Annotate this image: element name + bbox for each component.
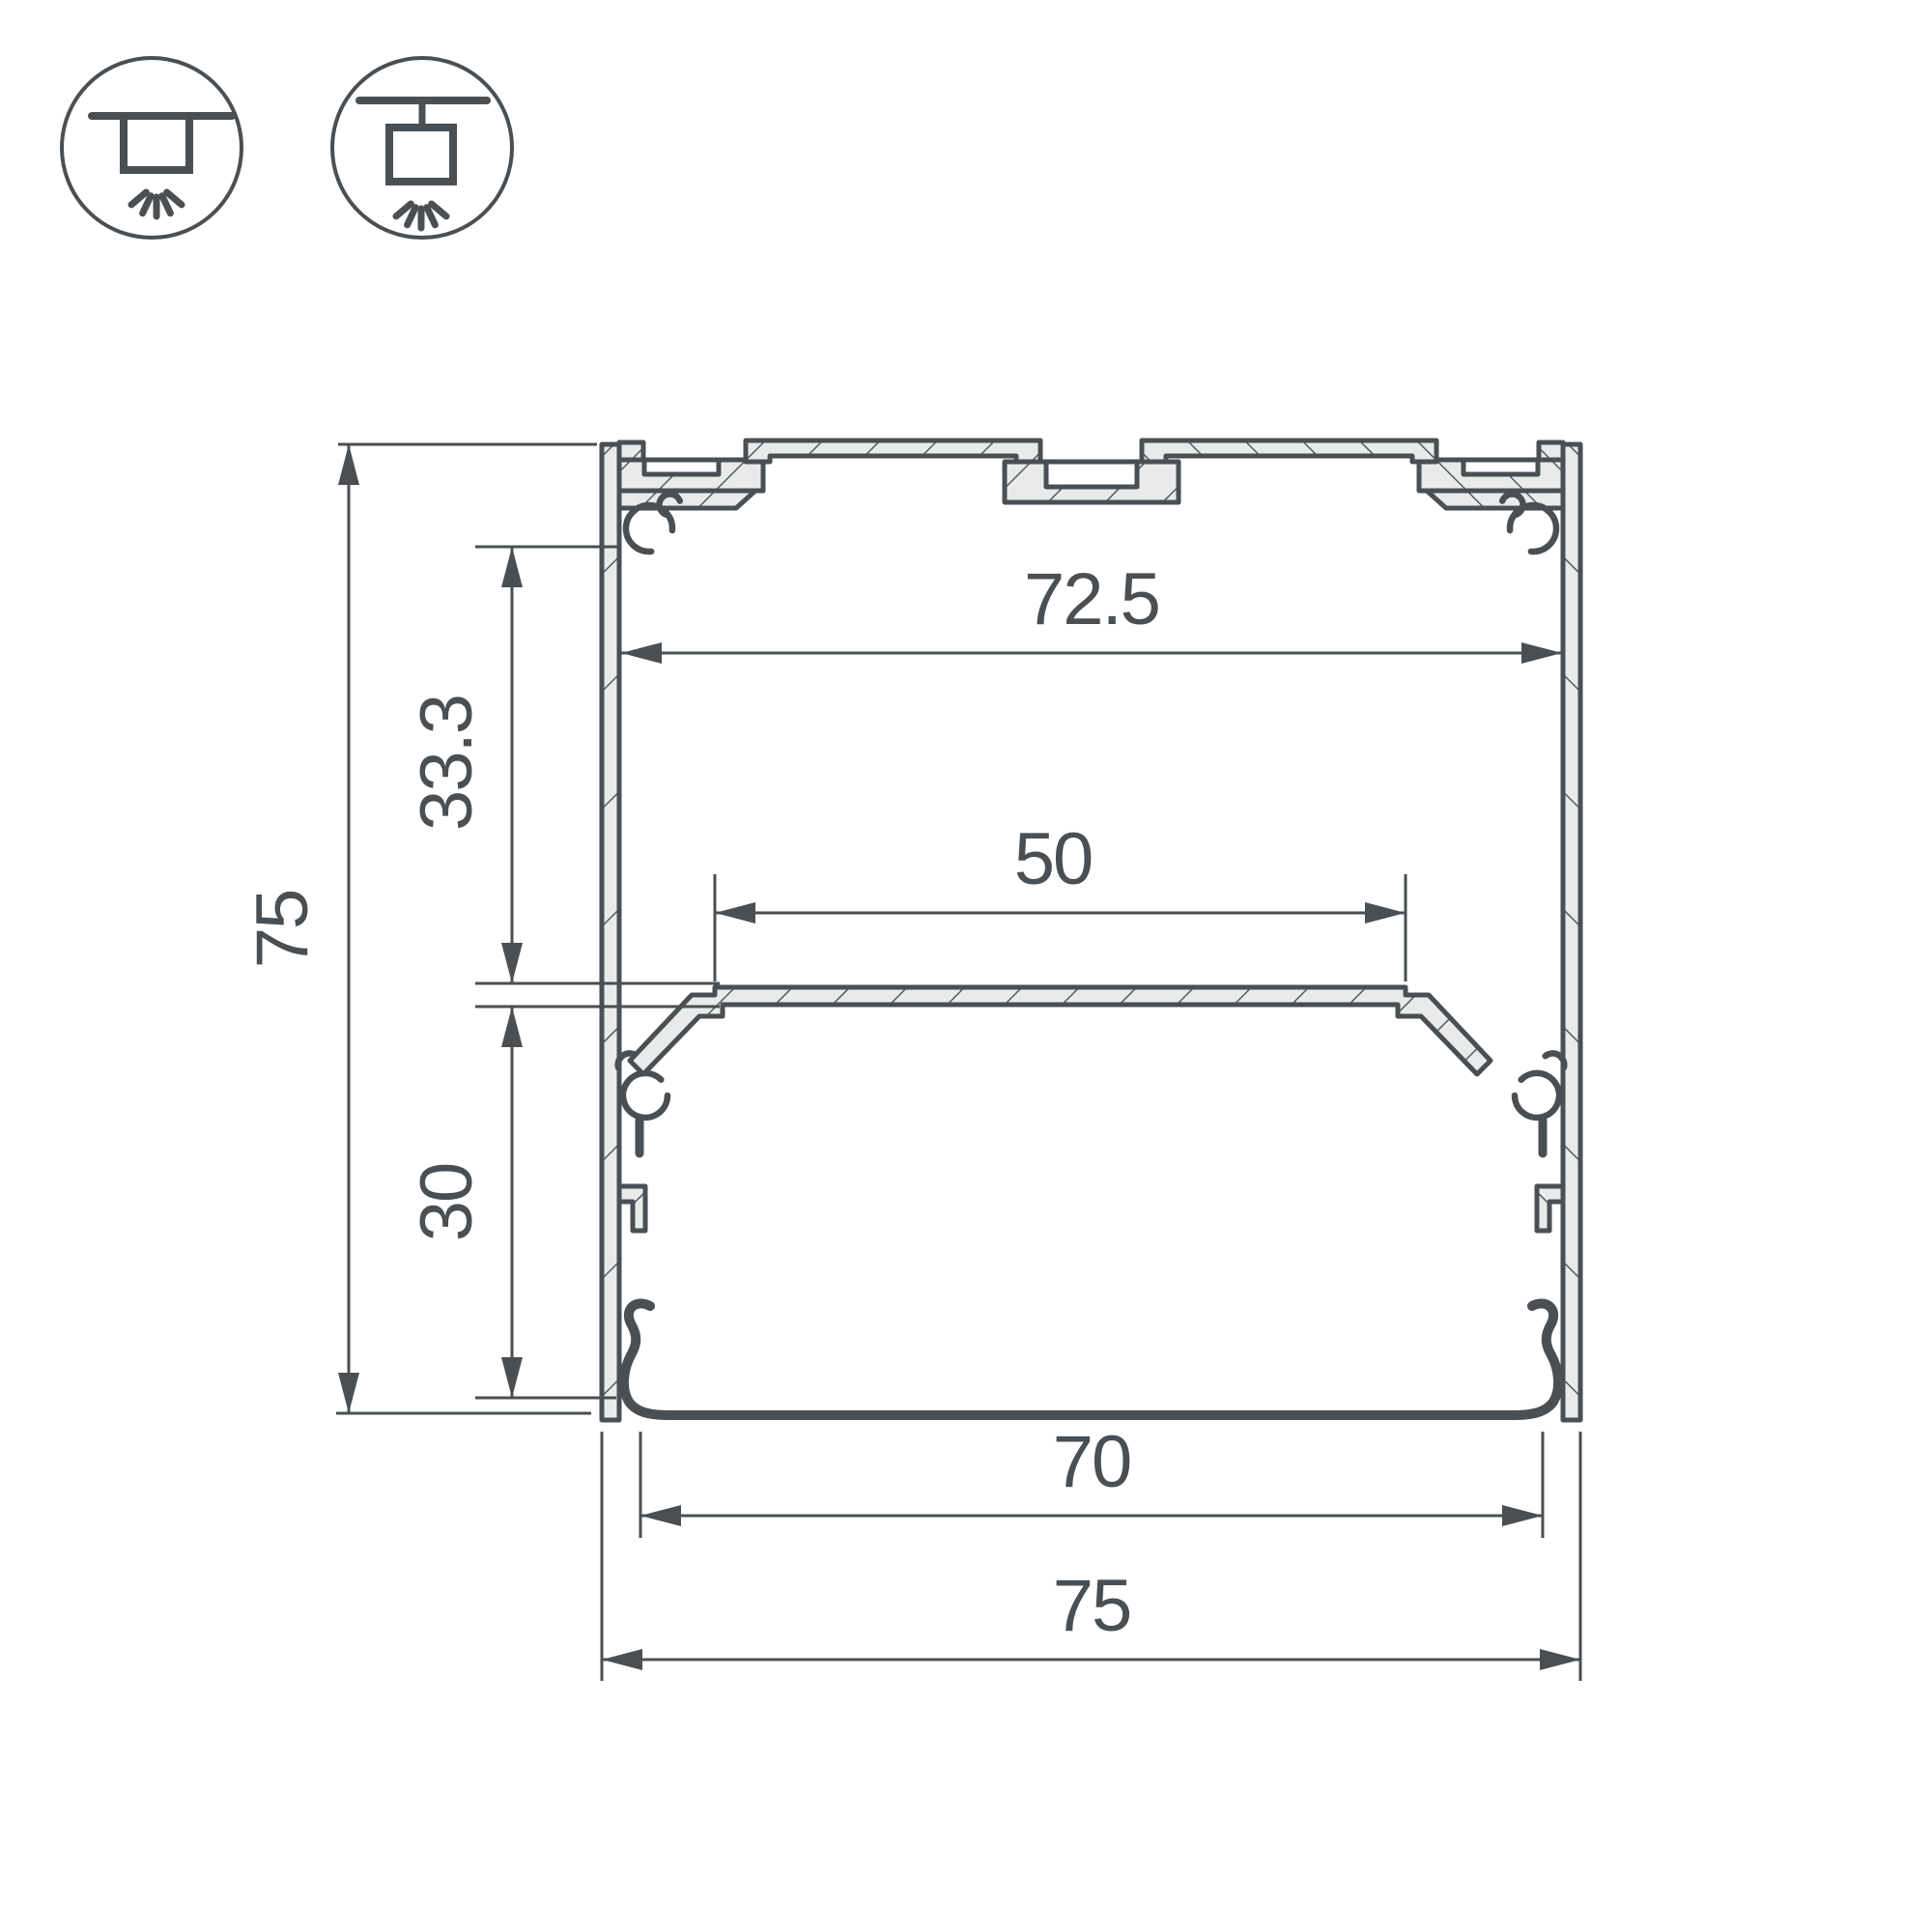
dim-label-led-shelf-width: 50: [1014, 818, 1093, 900]
dim-label-top-inner-width: 72.5: [1024, 558, 1159, 640]
side-wall: [602, 444, 619, 1420]
dim-upper-cavity-depth: 33.3: [406, 547, 720, 983]
technical-drawing-page: 75 33.3 30 72.5 50 70: [0, 0, 1932, 1932]
dim-led-shelf-width: 50: [715, 818, 1406, 981]
dim-diffuser-width: 70: [640, 1421, 1543, 1538]
top-mounting-plate: [746, 440, 1040, 462]
profile-cross-section-drawing: 75 33.3 30 72.5 50 70: [0, 0, 1932, 1932]
dim-label-diffuser-width: 70: [1053, 1421, 1131, 1503]
dim-label-overall-height: 75: [241, 891, 324, 969]
dim-top-inner-width: 72.5: [621, 558, 1562, 664]
profile-box: [124, 116, 189, 170]
clip-groove-tab: [619, 1186, 645, 1231]
dim-label-lower-cavity: 30: [406, 1164, 488, 1242]
mounting-options: [62, 58, 512, 238]
light-rays: [396, 204, 446, 228]
diffuser-cover: [624, 1303, 1558, 1415]
light-rays: [131, 192, 182, 216]
profile-box: [389, 128, 453, 182]
profile-right-half: [1142, 440, 1580, 1420]
center-t-slot-channel: [1005, 462, 1179, 502]
led-shelf-plate: [630, 987, 1491, 1074]
pendant-mount-icon: [332, 58, 512, 238]
dim-label-overall-width: 75: [1053, 1565, 1131, 1647]
dim-overall-height: 75: [241, 444, 597, 1413]
surface-mount-icon: [62, 58, 241, 238]
dim-label-upper-cavity: 33.3: [406, 696, 488, 831]
t-slot-channel: [619, 460, 763, 491]
dim-lower-cavity-depth: 30: [406, 1007, 720, 1398]
profile-left-half: [602, 440, 1040, 1420]
